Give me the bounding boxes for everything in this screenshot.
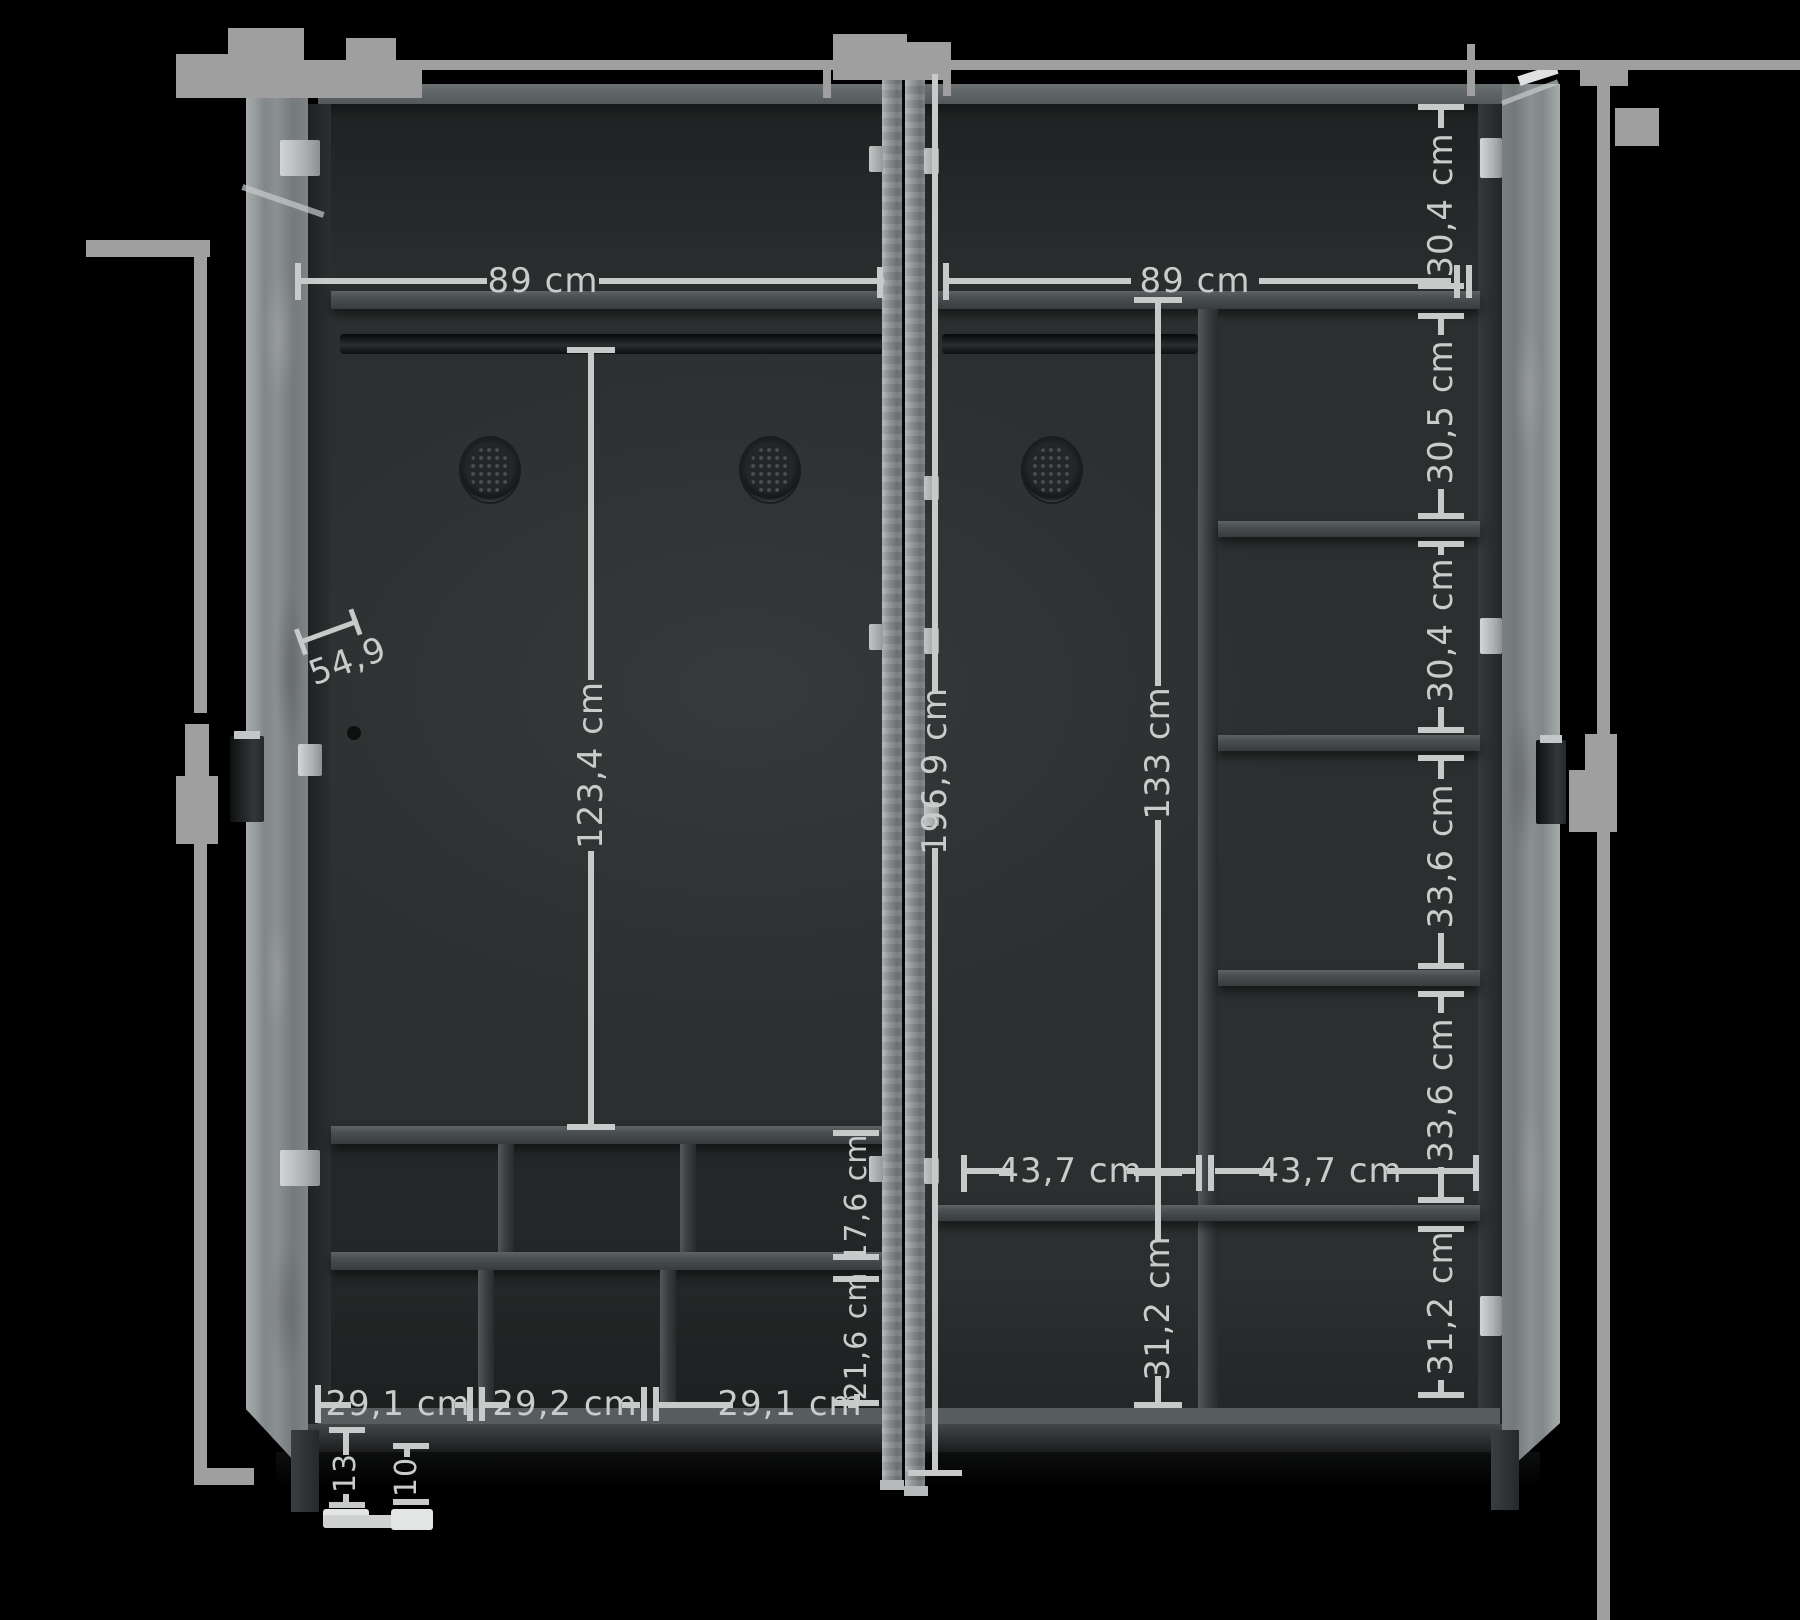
right-door-hinge-middle	[1480, 618, 1502, 654]
dim-89l-seg2	[599, 278, 884, 284]
dim-10-bar-bottom	[393, 1499, 429, 1505]
dim-312mid-stem-upper	[1155, 1176, 1161, 1240]
vent-grommet-1-mesh	[469, 446, 511, 494]
right-side-wall	[1478, 104, 1504, 1432]
dim-right-shelf-gap-5: 33,6 cm	[1424, 1017, 1458, 1162]
dim-g5-bar-a	[1418, 1197, 1464, 1203]
center-door-left-bottom-cap	[880, 1480, 904, 1490]
dim-right-mid-bottom-height: 31,2 cm	[1141, 1235, 1175, 1380]
dim-left-cubby-row1-height: 17,6 cm	[842, 1133, 872, 1262]
center-door-hinge-tab-l1	[869, 146, 883, 172]
dim-292-t1	[641, 1387, 647, 1421]
left-top-shelf	[331, 291, 890, 309]
left-height-line-top-bracket	[86, 240, 210, 257]
dim-1234-bar-bottom	[567, 1124, 615, 1130]
clipped-label-blob-top-left-3	[300, 60, 422, 98]
dim-g4-stem-b	[1438, 933, 1444, 965]
dim-10-stem-a	[404, 1449, 410, 1457]
dim-right-shelf-gap-1: 30,4 cm	[1424, 132, 1458, 277]
left-door-handle	[230, 736, 264, 822]
dim-291a-t1	[467, 1387, 473, 1421]
dim-right-shelf-gap-2: 30,5 cm	[1424, 339, 1458, 484]
left-height-line-upper	[194, 257, 207, 713]
dim-g6-bar-bottom	[1418, 1392, 1464, 1398]
wardrobe-dimension-diagram: 89 cm 89 cm 123,4 cm 54,9 196,9 cm 133 c…	[0, 0, 1800, 1620]
right-column-shelf-3	[1218, 735, 1480, 751]
wall-pin	[347, 726, 361, 740]
dim-g3-stem-b	[1438, 707, 1444, 729]
clipped-label-blob-top-left-2	[228, 28, 304, 98]
left-height-line-foot	[194, 1468, 254, 1485]
dim-437-t2	[1208, 1155, 1214, 1191]
right-door-hinge-top	[1480, 138, 1502, 178]
dim-133-stem-upper	[1155, 303, 1161, 686]
dim-10-bar-top	[393, 1443, 429, 1449]
right-door-handle-cap	[1540, 735, 1562, 743]
center-door-left-texture	[882, 70, 902, 1488]
dim-1234-stem-lower	[588, 851, 594, 1124]
cubby-divider-row1-a	[498, 1144, 514, 1252]
dim-g2-stem-b	[1438, 489, 1444, 515]
dim-13-bar-bottom	[329, 1502, 365, 1508]
clipped-label-blob-right-1	[1585, 734, 1617, 832]
center-door-right-bottom-cap	[904, 1486, 928, 1496]
dim-292-seg2	[622, 1402, 640, 1408]
dim-1969-stem-lower	[932, 848, 938, 1470]
dim-left-hanging-height: 123,4 cm	[574, 681, 608, 849]
dim-g3-bar-a	[1418, 727, 1464, 733]
dim-g5-stem	[1438, 997, 1444, 1013]
dim-1969-stem-upper	[932, 74, 938, 694]
right-height-line-upper	[1597, 86, 1610, 736]
dim-left-section-width: 89 cm	[488, 264, 599, 298]
right-bottom-shelf	[935, 1205, 1480, 1221]
clipped-label-blob-top-center-1	[833, 34, 907, 80]
dim-right-shelf-gap-6: 31,2 cm	[1424, 1230, 1458, 1375]
dim-1234-stem-upper	[588, 353, 594, 680]
dim-89l-seg1	[301, 278, 487, 284]
center-door-left	[882, 70, 902, 1488]
inner-foot-pad	[391, 1509, 433, 1530]
right-center-partition	[1198, 309, 1218, 1408]
center-door-hinge-tab-l2	[869, 624, 883, 650]
left-height-line-lower	[194, 842, 207, 1476]
left-door-hinge-top	[280, 140, 320, 176]
dim-g2-bar-a	[1418, 513, 1464, 519]
right-column-shelf-4	[1218, 970, 1480, 986]
right-front-leg	[1491, 1430, 1519, 1510]
dim-g4-stem	[1438, 761, 1444, 779]
dim-437-t1	[1196, 1155, 1202, 1191]
right-door-handle	[1536, 740, 1566, 824]
dim-right-shelf-gap-3: 30,4 cm	[1424, 557, 1458, 702]
vent-grommet-2	[741, 438, 799, 502]
dim-left-cubby-width-3: 29,1 cm	[717, 1387, 862, 1421]
dim-left-cubby-row2-height: 21,6 cm	[842, 1271, 872, 1400]
clipped-label-blob-right-2	[1569, 770, 1586, 832]
dim-13-stem-a	[343, 1433, 349, 1455]
dim-312mid-stem-lower	[1155, 1376, 1161, 1402]
dim-left-cubby-width-1: 29,1 cm	[325, 1387, 470, 1421]
dim-89r-tick-r2	[1466, 265, 1472, 298]
dim-right-cell-width-1: 43,7 cm	[997, 1154, 1142, 1188]
dim-leg-height: 10	[392, 1457, 422, 1497]
clipped-label-blob-left-2	[176, 776, 218, 844]
overall-width-tick-c	[1467, 44, 1475, 96]
right-height-line-top-bracket	[1580, 66, 1628, 86]
dim-g4-bar-a	[1418, 963, 1464, 969]
dim-89r-seg1	[949, 278, 1131, 284]
dim-left-cubby-width-2: 29,2 cm	[492, 1387, 637, 1421]
dim-interior-height: 196,9 cm	[918, 687, 952, 855]
dim-312mid-bar-bottom	[1134, 1402, 1182, 1408]
left-front-leg	[291, 1430, 319, 1512]
dim-right-shelf-gap-4: 33,6 cm	[1424, 783, 1458, 928]
vent-grommet-1	[461, 438, 519, 502]
left-door-handle-cap	[234, 731, 260, 739]
clipped-label-blob-left-1	[185, 724, 209, 778]
vent-grommet-3-mesh	[1031, 446, 1073, 494]
right-door-hinge-bottom	[1480, 1296, 1502, 1336]
dim-right-hanging-height: 133 cm	[1141, 686, 1175, 820]
dim-g2-stem	[1438, 319, 1444, 335]
left-door-hinge-bottom	[280, 1150, 320, 1186]
right-column-shelf-2	[1218, 521, 1480, 537]
dim-g1-bar-a	[1418, 283, 1464, 289]
dim-437a-seg2	[1127, 1168, 1195, 1174]
dim-291a-seg2	[455, 1402, 465, 1408]
dim-176-bar-a	[833, 1254, 879, 1260]
vent-grommet-3	[1023, 438, 1081, 502]
clipped-label-blob-top-left-4	[346, 38, 396, 64]
cubby-divider-row2-b	[660, 1270, 676, 1408]
vent-grommet-2-mesh	[749, 446, 791, 494]
left-door-hinge-middle	[298, 744, 322, 776]
left-cubby-shelf-lower	[331, 1252, 890, 1270]
dim-right-cell-width-2: 43,7 cm	[1257, 1154, 1402, 1188]
dim-133-stem-lower	[1155, 820, 1161, 1170]
right-height-line-top-block	[1615, 108, 1659, 146]
clipped-label-blob-top-center-2	[907, 42, 951, 80]
dim-plinth-clearance: 13	[331, 1453, 361, 1493]
dim-89l-tick-right	[877, 267, 883, 298]
dim-right-section-width: 89 cm	[1140, 264, 1251, 298]
dim-1969-bar-bottom	[908, 1470, 962, 1476]
overall-width-line	[288, 60, 1800, 70]
dim-437b-tick	[1473, 1155, 1479, 1191]
dim-291b-seg2	[848, 1402, 856, 1408]
dim-437b-seg2	[1387, 1168, 1473, 1174]
dim-g1-stem	[1438, 110, 1444, 128]
dim-g3-stem	[1438, 547, 1444, 555]
overall-width-tick-a	[823, 70, 831, 98]
right-height-line-lower	[1597, 830, 1610, 1620]
cubby-divider-row1-b	[680, 1144, 696, 1252]
